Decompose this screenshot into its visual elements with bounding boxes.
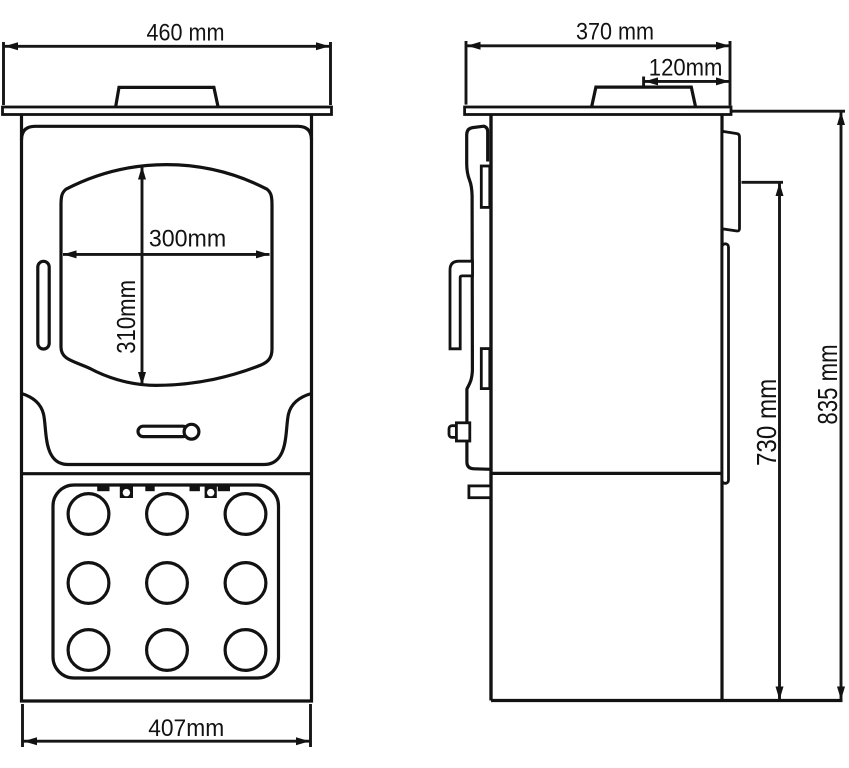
svg-text:300mm: 300mm bbox=[149, 226, 226, 253]
svg-text:835 mm: 835 mm bbox=[812, 344, 843, 424]
svg-text:310mm: 310mm bbox=[111, 280, 141, 354]
svg-text:120mm: 120mm bbox=[649, 54, 723, 81]
svg-text:370 mm: 370 mm bbox=[576, 18, 654, 45]
svg-text:407mm: 407mm bbox=[148, 715, 224, 742]
svg-text:730 mm: 730 mm bbox=[751, 379, 782, 466]
svg-text:460 mm: 460 mm bbox=[147, 20, 225, 47]
